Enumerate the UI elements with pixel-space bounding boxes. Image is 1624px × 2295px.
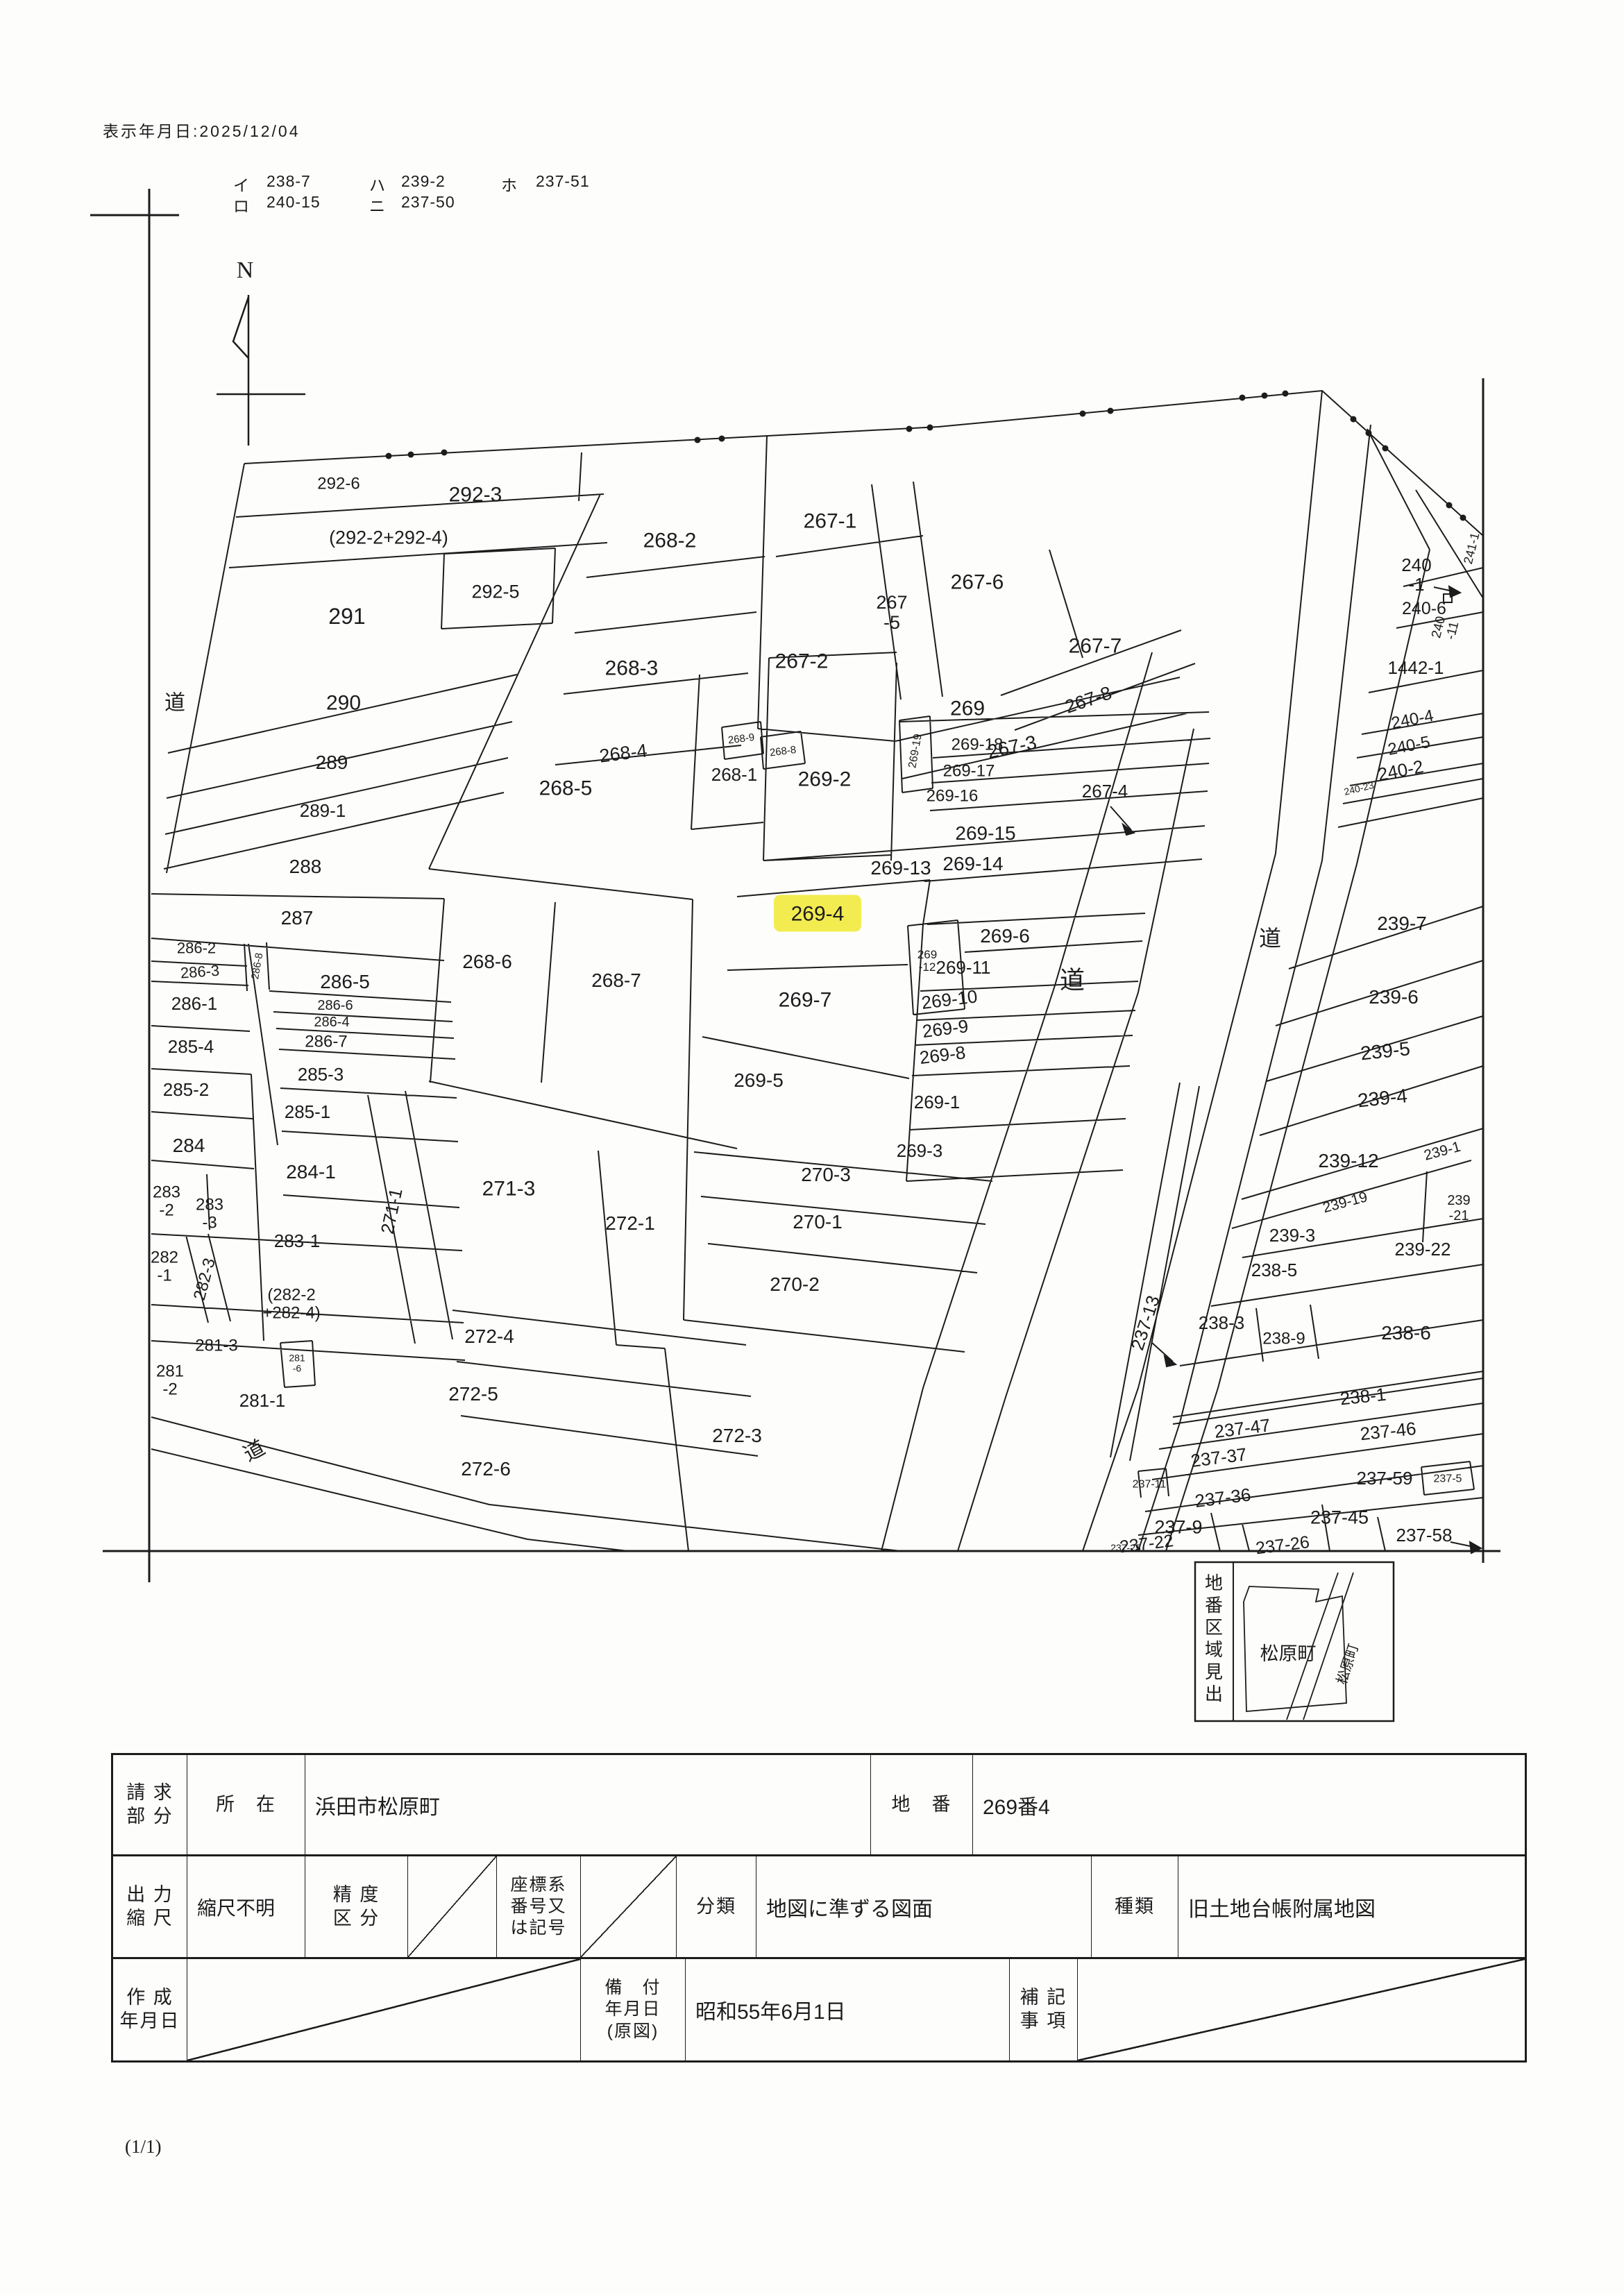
parcel-label-237-26: 237-26 <box>1255 1532 1311 1558</box>
parcel-label-286-6: 286-6 <box>317 998 353 1013</box>
parcel-label-292-5: 292-5 <box>471 581 519 602</box>
parcel-label-267-1: 267-1 <box>804 510 857 533</box>
inset-title-char: 地 <box>1205 1573 1223 1593</box>
parcel-label-288: 288 <box>289 856 322 877</box>
parcel-label-237-11: 237-11 <box>1133 1479 1167 1491</box>
parcel-label-239-1: 239-1 <box>1422 1139 1462 1164</box>
inset-title-char: 区 <box>1205 1617 1223 1638</box>
map-frame <box>90 189 1500 1582</box>
cell-precision-blank <box>407 1856 496 1957</box>
parcel-label-239-5: 239-5 <box>1360 1038 1411 1064</box>
value-location: 浜田市松原町 <box>305 1755 870 1854</box>
parcel-label-240-6: 240-6 <box>1402 599 1446 618</box>
parcel-label-267-5: 267-5 <box>876 592 907 633</box>
parcel-label-237-46: 237-46 <box>1359 1418 1417 1444</box>
parcel-label-240-23: 240-23 <box>1343 779 1375 797</box>
road-label: 道 <box>1259 926 1281 951</box>
parcel-label-269-1: 269-1 <box>914 1092 961 1112</box>
parcel-label-237-25: 237-25 <box>1110 1542 1141 1553</box>
parcel-label-268-4: 268-4 <box>598 740 648 766</box>
parcel-label-238-9: 238-9 <box>1262 1329 1305 1348</box>
parcel-label-269-18: 269-18 <box>951 735 1004 754</box>
inset-title-char: 域 <box>1205 1639 1223 1660</box>
parcel-label-237-13: 237-13 <box>1126 1293 1164 1353</box>
parcel-label-239-19: 239-19 <box>1321 1189 1369 1216</box>
parcel-label-238-1: 238-1 <box>1339 1384 1387 1409</box>
inset-title-char: 番 <box>1205 1595 1223 1616</box>
inset-title: 地番区域見出 <box>1205 1573 1223 1704</box>
label-classification: 分類 <box>676 1856 756 1957</box>
parcel-label-268-9: 268-9 <box>727 731 755 747</box>
parcel-label-290: 290 <box>326 692 361 715</box>
parcel-label-269-5: 269-5 <box>734 1069 784 1091</box>
parcel-label-240-1: 240-1 <box>1401 554 1431 595</box>
parcel-label-239-4: 239-4 <box>1357 1085 1408 1111</box>
parcel-label-1442-1: 1442-1 <box>1388 657 1444 678</box>
parcel-label-238-3: 238-3 <box>1199 1312 1245 1333</box>
parcel-label-268-2: 268-2 <box>643 530 697 552</box>
label-location: 所 在 <box>187 1755 305 1854</box>
parcel-label-237-58: 237-58 <box>1396 1525 1453 1545</box>
parcel-label-269-4: 269-4 <box>791 903 845 926</box>
label-kind: 種類 <box>1091 1856 1178 1957</box>
cell-remarks-blank <box>1077 1959 1525 2060</box>
parcel-label-286-2: 286-2 <box>177 940 216 957</box>
parcel-label-237-47: 237-47 <box>1213 1414 1271 1442</box>
value-parcel-number: 269番4 <box>972 1755 1525 1854</box>
parcel-label-286-5: 286-5 <box>320 971 370 992</box>
parcel-label-272-3: 272-3 <box>712 1425 762 1446</box>
label-precision-class: 精 度 区 分 <box>305 1856 407 1957</box>
parcel-label-286-1: 286-1 <box>171 993 218 1014</box>
parcel-label-285-3: 285-3 <box>298 1064 344 1085</box>
inset-road-label: 松原町 <box>1334 1642 1362 1686</box>
label-remarks: 補 記 事 項 <box>1009 1959 1077 2060</box>
parcel-label-286-4: 286-4 <box>314 1015 349 1030</box>
parcel-label-271-3: 271-3 <box>482 1178 536 1201</box>
parcel-label-282-1: 282-1 <box>151 1248 178 1285</box>
value-filed-date: 昭和55年6月1日 <box>685 1959 1009 2060</box>
parcel-label-269-7: 269-7 <box>779 989 832 1012</box>
parcel-label-289-1: 289-1 <box>300 800 346 821</box>
parcel-label-237-5: 237-5 <box>1434 1473 1462 1485</box>
north-label: N <box>237 257 254 283</box>
parcel-label-281-2: 281-2 <box>156 1362 184 1398</box>
scanned-cadastral-document: 表示年月日:2025/12/04 イ 238-7 ロ 240-15 ハ 239-… <box>0 0 1624 2295</box>
parcel-label-269-13: 269-13 <box>870 857 931 879</box>
parcel-label-281-3: 281-3 <box>195 1336 237 1355</box>
parcel-label-269-8: 269-8 <box>918 1042 967 1068</box>
value-output-scale: 縮尺不明 <box>187 1856 305 1957</box>
parcel-label-238-6: 238-6 <box>1381 1322 1431 1344</box>
parcel-label-272-4: 272-4 <box>464 1326 514 1347</box>
parcel-label-268-8: 268-8 <box>769 744 797 759</box>
metadata-table: 請 求 部 分 所 在 浜田市松原町 地 番 269番4 出 力 縮 尺 縮尺不… <box>111 1753 1527 2063</box>
parcel-label-268-3: 268-3 <box>605 657 659 680</box>
label-created-date: 作 成 年月日 <box>113 1959 187 2060</box>
parcel-label-269-12: 269-12 <box>917 948 937 974</box>
value-classification: 地図に準ずる図面 <box>756 1856 1091 1957</box>
parcel-label-238-5: 238-5 <box>1251 1260 1298 1280</box>
parcel-label-239-12: 239-12 <box>1318 1150 1378 1171</box>
parcel-label-269: 269 <box>950 697 985 720</box>
parcel-label-286-7: 286-7 <box>305 1032 347 1051</box>
parcel-label-240-5: 240-5 <box>1386 733 1431 759</box>
parcel-label-284: 284 <box>173 1135 205 1156</box>
parcel-label-291: 291 <box>328 604 365 629</box>
parcel-label-241-1: 241-1 <box>1461 531 1482 566</box>
cell-coordinate-blank <box>580 1856 676 1957</box>
parcel-label-267-8: 267-8 <box>1063 682 1115 718</box>
parcel-label-285-1: 285-1 <box>285 1101 331 1122</box>
parcel-label-239-3: 239-3 <box>1269 1225 1316 1246</box>
road-label: 道 <box>1060 966 1085 994</box>
leader-arrows <box>1110 586 1481 1553</box>
parcel-label-268-1: 268-1 <box>711 764 758 785</box>
parcel-label-239-6: 239-6 <box>1369 986 1419 1008</box>
parcel-label-283-1: 283-1 <box>274 1230 321 1251</box>
parcel-label-268-6: 268-6 <box>462 951 512 972</box>
inset-index-map: 地番区域見出 松原町 松原町 <box>1195 1562 1394 1721</box>
parcel-label-237-45: 237-45 <box>1310 1507 1369 1527</box>
parcel-label-267-4: 267-4 <box>1082 781 1128 802</box>
parcel-label-239-22: 239-22 <box>1395 1239 1451 1260</box>
parcel-label-(282-2+282-4): (282-2+282-4) <box>262 1285 320 1322</box>
parcel-label-283-2: 283-2 <box>153 1183 180 1219</box>
parcel-label-272-6: 272-6 <box>461 1458 511 1480</box>
inset-title-char: 出 <box>1205 1684 1223 1704</box>
parcel-label-267-6: 267-6 <box>951 571 1004 594</box>
parcel-label-268-7: 268-7 <box>591 969 641 991</box>
label-parcel-number: 地 番 <box>870 1755 972 1854</box>
inset-title-char: 見 <box>1205 1661 1223 1682</box>
parcel-label-292-3: 292-3 <box>449 484 502 507</box>
parcel-label-286-3: 286-3 <box>180 962 220 982</box>
parcel-label-270-3: 270-3 <box>801 1164 851 1185</box>
parcel-label-269-15: 269-15 <box>955 822 1015 844</box>
page-number: (1/1) <box>125 2136 161 2158</box>
parcel-label-284-1: 284-1 <box>286 1161 336 1183</box>
parcel-label-282-3: 282-3 <box>190 1256 219 1302</box>
parcel-label-270-1: 270-1 <box>793 1211 843 1233</box>
parcel-label-269-17: 269-17 <box>943 761 995 780</box>
label-filed-date: 備 付 年月日 (原図) <box>580 1959 685 2060</box>
parcel-label-239-21: 239-21 <box>1447 1193 1470 1223</box>
boundary-dots <box>386 391 1466 521</box>
label-output-scale: 出 力 縮 尺 <box>113 1856 187 1957</box>
parcel-label-281-1: 281-1 <box>239 1390 286 1411</box>
parcel-label-267-2: 267-2 <box>775 650 829 673</box>
parcel-label-268-5: 268-5 <box>539 777 593 800</box>
value-kind: 旧土地台帳附属地図 <box>1178 1856 1525 1957</box>
parcel-label-269-6: 269-6 <box>980 925 1030 947</box>
parcel-label-237-36: 237-36 <box>1194 1484 1252 1511</box>
parcel-label-269-11: 269-11 <box>936 957 990 978</box>
parcel-label-272-1: 272-1 <box>605 1212 655 1234</box>
parcel-label-283-3: 283-3 <box>196 1195 223 1232</box>
cell-created-blank <box>187 1959 580 2060</box>
parcel-label-285-2: 285-2 <box>163 1079 210 1100</box>
parcel-label-(292-2+292-4): (292-2+292-4) <box>329 527 448 548</box>
parcel-label-269-10: 269-10 <box>920 985 979 1013</box>
parcel-label-267-7: 267-7 <box>1069 635 1122 658</box>
parcel-label-240-2: 240-2 <box>1376 756 1426 785</box>
parcel-label-281-6: 281-6 <box>289 1352 305 1373</box>
label-request-part: 請 求 部 分 <box>113 1755 187 1854</box>
parcel-label-269-3: 269-3 <box>897 1140 943 1161</box>
label-coordinate-system: 座標系 番号又 は記号 <box>496 1856 580 1957</box>
parcel-label-292-6: 292-6 <box>317 474 360 493</box>
parcel-label-272-5: 272-5 <box>448 1383 498 1405</box>
parcel-label-285-4: 285-4 <box>168 1036 214 1057</box>
parcel-label-240-11: 240-11 <box>1429 615 1462 643</box>
parcel-label-269-14: 269-14 <box>942 853 1003 874</box>
town-boundary-line <box>244 391 1483 536</box>
parcel-label-286-8: 286-8 <box>249 952 265 981</box>
parcel-label-240-4: 240-4 <box>1389 706 1435 733</box>
parcel-label-269-16: 269-16 <box>927 786 979 805</box>
road-label: 道 <box>164 692 185 715</box>
parcel-label-239-7: 239-7 <box>1377 913 1427 934</box>
north-arrow: N <box>217 257 305 446</box>
parcel-label-289: 289 <box>316 752 348 773</box>
parcel-label-237-59: 237-59 <box>1357 1468 1413 1489</box>
inset-area-label: 松原町 <box>1260 1643 1317 1664</box>
parcel-label-271-1: 271-1 <box>377 1186 407 1235</box>
parcel-label-270-2: 270-2 <box>770 1273 820 1295</box>
parcel-label-269-2: 269-2 <box>798 768 852 791</box>
parcel-label-287: 287 <box>281 907 314 929</box>
